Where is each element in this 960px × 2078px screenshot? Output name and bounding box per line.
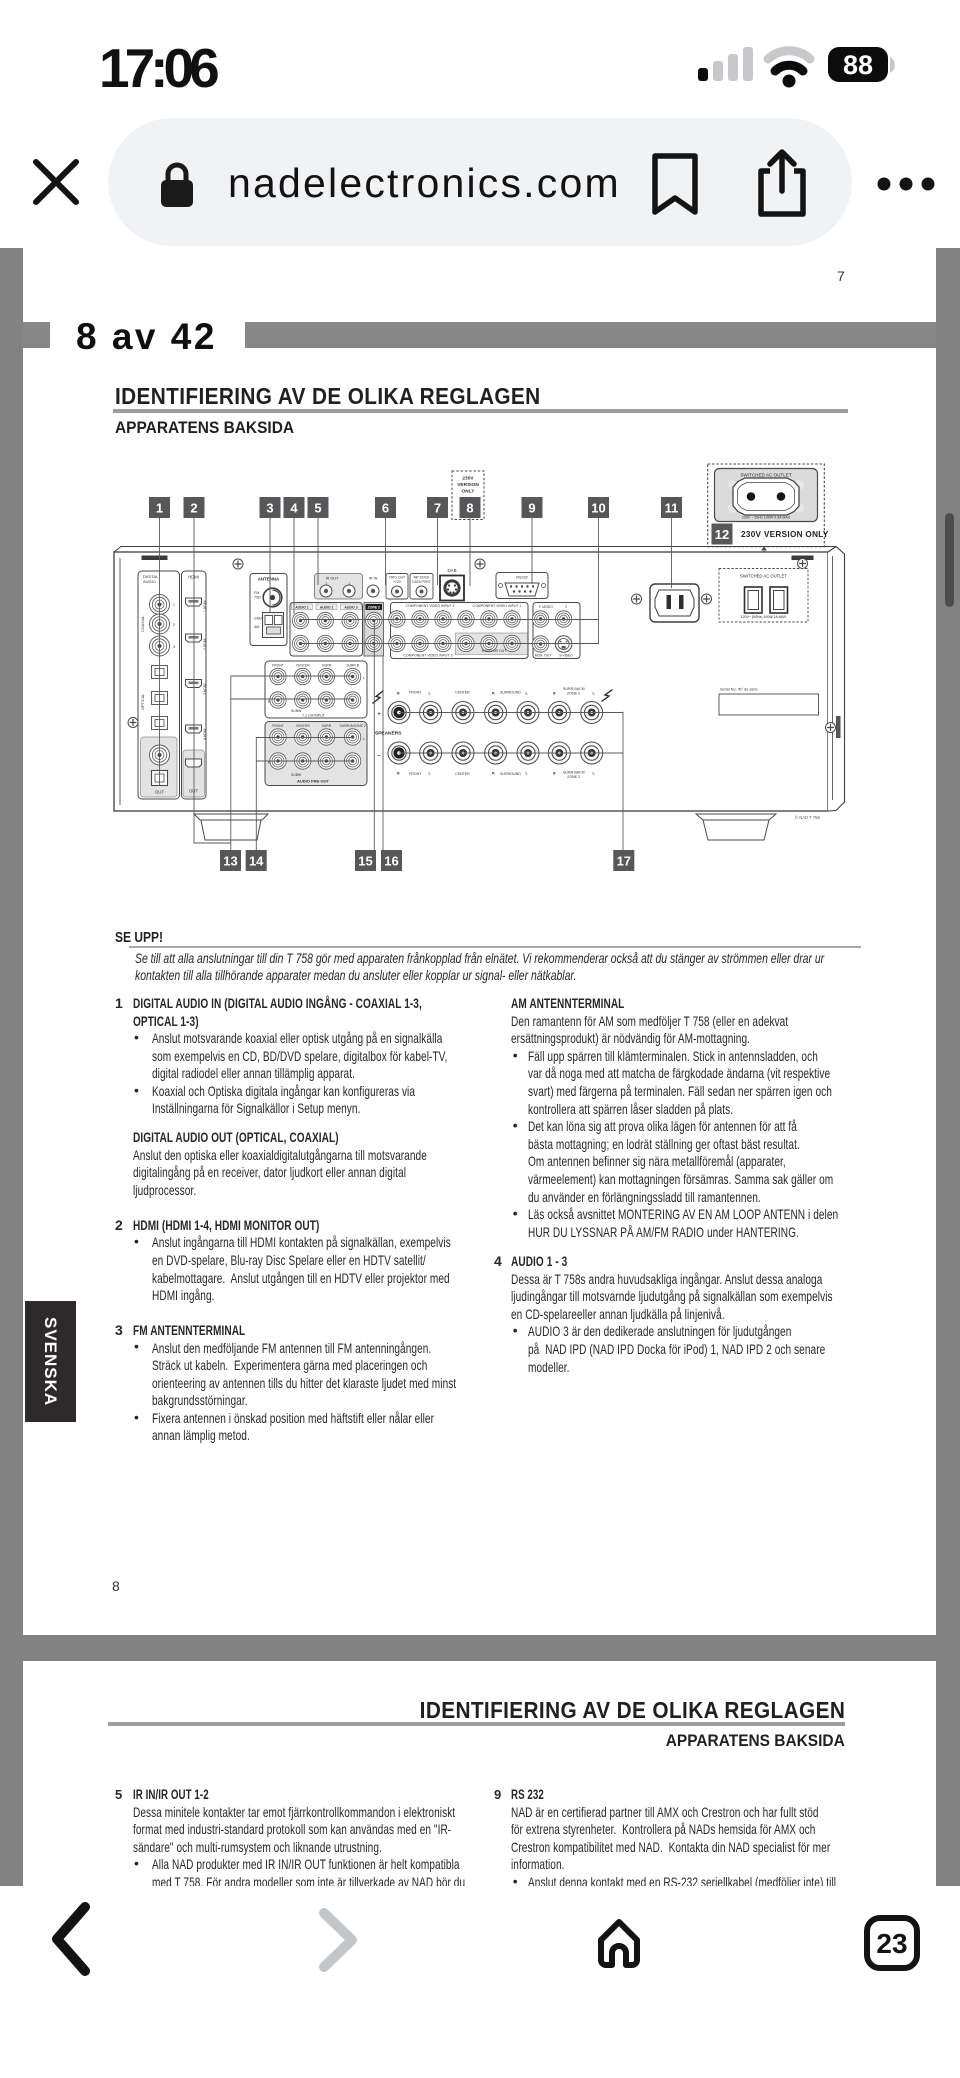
svg-text:2 HDMI: 2 HDMI xyxy=(203,638,207,650)
svg-text:2: 2 xyxy=(173,623,175,627)
svg-text:9: 9 xyxy=(528,501,535,516)
svg-text:AUDIO PRE-OUT: AUDIO PRE-OUT xyxy=(297,779,330,784)
svg-text:OPTICAL: OPTICAL xyxy=(141,694,145,710)
svg-text:75Ω: 75Ω xyxy=(254,596,261,600)
svg-text:COAXIAL: COAXIAL xyxy=(141,616,145,632)
svg-text:3 HDMI: 3 HDMI xyxy=(203,683,207,695)
svg-text:CENTER: CENTER xyxy=(455,691,470,695)
svg-text:SWITCHED AC OUTLET: SWITCHED AC OUTLET xyxy=(740,473,791,478)
svg-text:AUDIO: AUDIO xyxy=(143,579,156,584)
svg-text:R: R xyxy=(397,772,400,776)
svg-text:15: 15 xyxy=(358,854,372,869)
svg-text:F VIDEO: F VIDEO xyxy=(539,605,553,609)
svg-text:230V VERSION ONLY: 230V VERSION ONLY xyxy=(741,530,829,539)
svg-text:4: 4 xyxy=(290,501,298,516)
svg-text:2: 2 xyxy=(190,501,197,516)
svg-text:ZONE 2: ZONE 2 xyxy=(367,606,380,610)
svg-text:CENTER: CENTER xyxy=(455,772,470,776)
svg-text:–: – xyxy=(377,752,381,759)
svg-text:SURROUND: SURROUND xyxy=(500,691,521,695)
svg-text:6: 6 xyxy=(382,501,389,516)
svg-text:R: R xyxy=(397,692,400,696)
svg-text:14: 14 xyxy=(249,854,264,869)
svg-text:GND: GND xyxy=(254,617,262,621)
svg-text:+12V: +12V xyxy=(393,580,402,584)
svg-text:SURROUND: SURROUND xyxy=(500,772,521,776)
svg-text:L: L xyxy=(363,676,365,680)
svg-text:FRONT: FRONT xyxy=(409,691,422,695)
svg-text:SURR: SURR xyxy=(322,724,332,728)
svg-text:8: 8 xyxy=(466,501,473,516)
svg-text:ANTENNA: ANTENNA xyxy=(258,577,280,582)
svg-text:7.1 CH INPUT: 7.1 CH INPUT xyxy=(302,714,326,718)
svg-text:R: R xyxy=(268,761,271,765)
svg-text:RS232: RS232 xyxy=(516,576,528,580)
svg-text:MONITOR OUT: MONITOR OUT xyxy=(482,649,508,653)
svg-text:FRONT: FRONT xyxy=(409,772,422,776)
svg-text:DATA PORT: DATA PORT xyxy=(412,580,431,584)
svg-text:R: R xyxy=(553,772,556,776)
svg-text:AUDIO 2: AUDIO 2 xyxy=(320,606,334,610)
svg-text:3: 3 xyxy=(266,501,273,516)
svg-text:TRIG OUT: TRIG OUT xyxy=(389,576,405,580)
svg-text:SURR-B/ZONE 2: SURR-B/ZONE 2 xyxy=(340,724,366,728)
svg-text:88: 88 xyxy=(843,50,873,80)
svg-text:ZONE 2: ZONE 2 xyxy=(567,775,580,779)
svg-text:13: 13 xyxy=(223,854,237,869)
svg-text:COMPONENT VIDEO INPUT 1: COMPONENT VIDEO INPUT 1 xyxy=(473,604,522,608)
svg-text:7: 7 xyxy=(434,501,441,516)
svg-text:HDMI: HDMI xyxy=(188,575,199,580)
svg-text:FM: FM xyxy=(254,591,259,595)
svg-text:MON. OUT: MON. OUT xyxy=(535,654,551,658)
svg-text:CENTER: CENTER xyxy=(296,664,310,668)
svg-text:3: 3 xyxy=(173,645,175,649)
svg-text:COMPONENT VIDEO INPUT 3: COMPONENT VIDEO INPUT 3 xyxy=(404,654,453,658)
svg-text:23: 23 xyxy=(876,1928,907,1959)
svg-text:AUDIO 3: AUDIO 3 xyxy=(344,606,358,610)
svg-text:R: R xyxy=(492,772,495,776)
svg-text:R: R xyxy=(268,700,271,704)
svg-text:IR IN: IR IN xyxy=(369,577,378,581)
svg-text:4 HDMI: 4 HDMI xyxy=(203,728,207,740)
svg-text:10: 10 xyxy=(591,501,605,516)
svg-text:DAB: DAB xyxy=(447,568,456,573)
svg-text:FRONT: FRONT xyxy=(272,724,284,728)
svg-text:SUBW: SUBW xyxy=(291,709,302,713)
svg-text:230V ~ 50Hz 100W 0.5A MAX: 230V ~ 50Hz 100W 0.5A MAX xyxy=(742,516,791,520)
svg-text:1 HDMI: 1 HDMI xyxy=(203,600,207,612)
svg-text:IR OUT: IR OUT xyxy=(326,577,340,581)
svg-text:AUDIO 1: AUDIO 1 xyxy=(295,606,309,610)
svg-text:120V~ (60Hz) 100W 1A MAX: 120V~ (60Hz) 100W 1A MAX xyxy=(741,615,787,619)
svg-text:© NAD T 758: © NAD T 758 xyxy=(795,815,820,820)
svg-text:SWITCHED AC OUTLET: SWITCHED AC OUTLET xyxy=(740,574,787,579)
svg-text:S-VIDEO: S-VIDEO xyxy=(559,654,573,658)
svg-text:SURR-BACK/: SURR-BACK/ xyxy=(563,771,585,775)
svg-text:Serial No. /N° de série: Serial No. /N° de série xyxy=(720,688,758,692)
svg-text:FRONT: FRONT xyxy=(272,664,284,668)
svg-text:1: 1 xyxy=(156,501,163,516)
svg-text:5: 5 xyxy=(314,501,321,516)
svg-text:AM: AM xyxy=(254,625,259,629)
svg-text:OUT: OUT xyxy=(155,790,165,795)
svg-text:SURR: SURR xyxy=(322,664,332,668)
svg-text:R: R xyxy=(553,692,556,696)
svg-text:SPEAKERS: SPEAKERS xyxy=(375,731,402,737)
svg-text:SUBW: SUBW xyxy=(291,773,302,777)
svg-text:+: + xyxy=(377,711,381,718)
svg-text:COMPONENT VIDEO INPUT 2: COMPONENT VIDEO INPUT 2 xyxy=(406,604,455,608)
svg-text:12: 12 xyxy=(715,527,729,542)
svg-text:L: L xyxy=(363,737,365,741)
svg-text:SURR B: SURR B xyxy=(346,664,360,668)
svg-text:R: R xyxy=(492,692,495,696)
svg-text:11: 11 xyxy=(665,501,679,516)
svg-text:17: 17 xyxy=(617,854,631,869)
svg-text:16: 16 xyxy=(384,854,398,869)
svg-text:CENTER: CENTER xyxy=(296,724,310,728)
svg-text:MP DOCK: MP DOCK xyxy=(414,576,431,580)
svg-text:VERSION: VERSION xyxy=(457,482,479,488)
svg-text:1: 1 xyxy=(173,603,175,607)
svg-text:ZONE 2: ZONE 2 xyxy=(567,692,580,696)
svg-text:ONLY: ONLY xyxy=(462,489,476,495)
svg-text:SURR-BACK/: SURR-BACK/ xyxy=(563,687,585,691)
svg-text:230V: 230V xyxy=(462,476,474,482)
